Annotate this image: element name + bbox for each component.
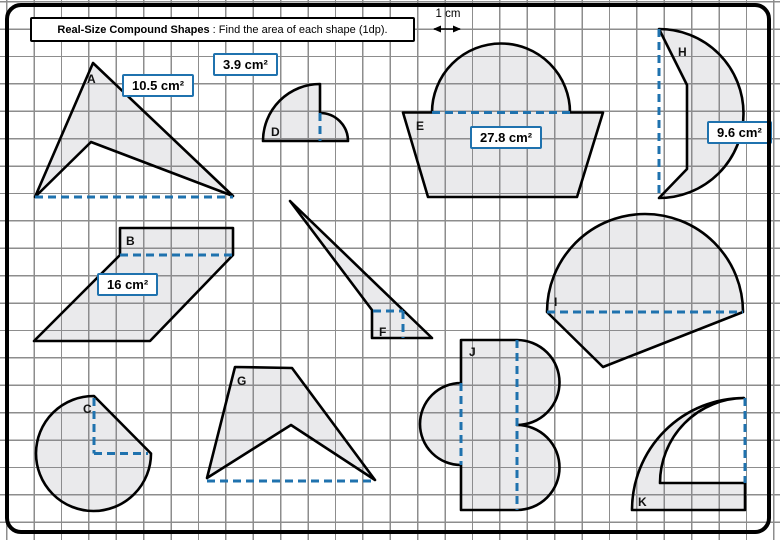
- area-label-27-8: 27.8 cm²: [470, 126, 542, 149]
- area-label-9-6: 9.6 cm²: [707, 121, 772, 144]
- scale-label: 1 cm: [433, 8, 463, 20]
- label-shape-e: E: [416, 119, 424, 133]
- shape-j-bumps: [420, 340, 560, 510]
- label-shape-g: G: [237, 374, 246, 388]
- worksheet-canvas: A B C D E F G H I J K: [0, 0, 780, 540]
- area-label-10-5: 10.5 cm²: [122, 74, 194, 97]
- title-rest-text: : Find the area of each shape (1dp).: [210, 24, 388, 36]
- label-shape-d: D: [271, 125, 280, 139]
- label-shape-b: B: [126, 234, 135, 248]
- worksheet-page: A B C D E F G H I J K Real-Size Compound…: [0, 0, 780, 540]
- shape-k-curved-l: [632, 398, 745, 510]
- shape-g-chevron: [207, 367, 375, 480]
- title-bold-text: Real-Size Compound Shapes: [57, 24, 209, 36]
- shape-e-trapezoid-dome: [403, 44, 603, 198]
- label-shape-j: J: [469, 345, 476, 359]
- label-shape-c: C: [83, 402, 92, 416]
- label-shape-h: H: [678, 45, 687, 59]
- shape-i-fan: [547, 214, 743, 367]
- area-label-3-9: 3.9 cm²: [213, 53, 278, 76]
- label-shape-k: K: [638, 495, 647, 509]
- title-box: Real-Size Compound Shapes : Find the are…: [30, 17, 415, 42]
- scale-arrow-icon: [433, 26, 461, 33]
- label-shape-f: F: [379, 325, 386, 339]
- shape-h-crescent: [659, 29, 744, 198]
- shape-f-sliver: [290, 201, 432, 338]
- label-shape-i: I: [554, 295, 557, 309]
- area-label-16: 16 cm²: [97, 273, 158, 296]
- label-shape-a: A: [87, 72, 96, 86]
